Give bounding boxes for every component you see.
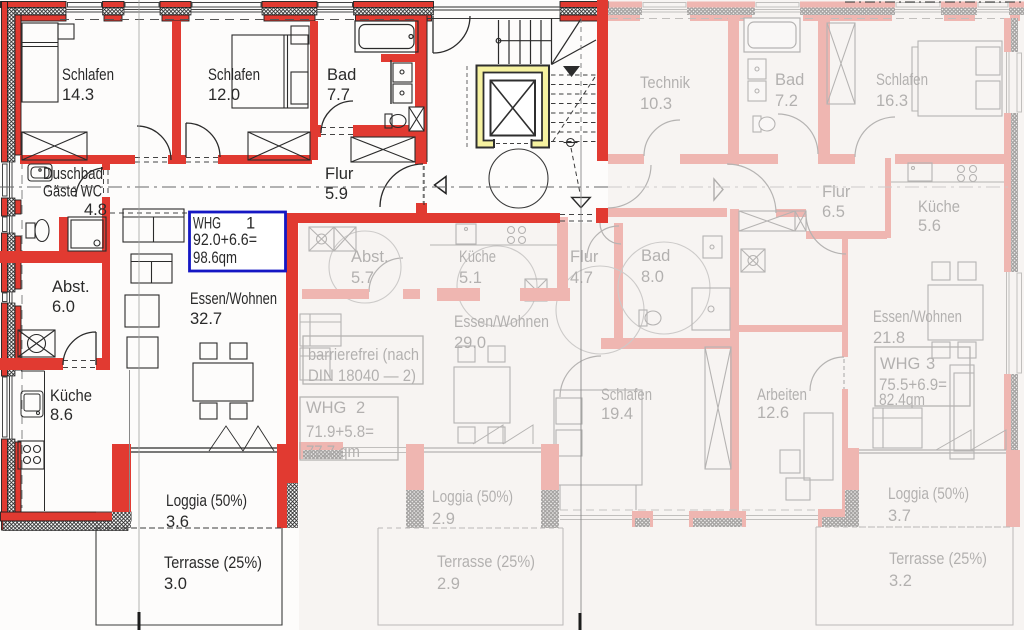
svg-text:92.0+6.6=: 92.0+6.6= xyxy=(193,231,257,249)
svg-text:Loggia (50%): Loggia (50%) xyxy=(888,485,969,503)
svg-text:Schlafen: Schlafen xyxy=(62,66,114,84)
svg-text:98.6qm: 98.6qm xyxy=(193,249,237,267)
svg-text:8.6: 8.6 xyxy=(50,406,73,424)
svg-text:Gäste WC: Gäste WC xyxy=(43,183,102,201)
svg-text:Abst.: Abst. xyxy=(351,248,389,266)
svg-text:21.8: 21.8 xyxy=(873,329,905,347)
svg-text:5.7: 5.7 xyxy=(351,269,374,287)
svg-text:3.6: 3.6 xyxy=(166,513,189,531)
svg-text:77.7 qm: 77.7 qm xyxy=(306,443,360,461)
svg-text:Loggia (50%): Loggia (50%) xyxy=(166,492,247,510)
svg-text:Schlafen: Schlafen xyxy=(208,66,260,84)
svg-text:14.3: 14.3 xyxy=(62,86,94,104)
svg-text:Küche: Küche xyxy=(50,387,92,405)
svg-text:3.0: 3.0 xyxy=(164,575,187,593)
svg-text:Flur: Flur xyxy=(325,165,354,183)
svg-text:6.5: 6.5 xyxy=(822,203,845,221)
svg-text:82.4qm: 82.4qm xyxy=(879,391,925,409)
svg-text:2.9: 2.9 xyxy=(432,510,455,528)
svg-text:Flur: Flur xyxy=(570,248,599,266)
svg-text:Abst.: Abst. xyxy=(52,278,90,296)
svg-text:Essen/Wohnen: Essen/Wohnen xyxy=(873,308,962,326)
svg-text:Küche: Küche xyxy=(918,198,960,216)
svg-text:3.2: 3.2 xyxy=(889,572,912,590)
svg-text:4.8: 4.8 xyxy=(84,201,107,219)
svg-text:12.0: 12.0 xyxy=(208,86,240,104)
svg-text:WHG: WHG xyxy=(880,355,920,373)
svg-text:Bad: Bad xyxy=(775,71,804,89)
svg-text:32.7: 32.7 xyxy=(190,310,222,328)
svg-text:1: 1 xyxy=(246,215,255,233)
svg-text:Technik: Technik xyxy=(640,74,691,92)
svg-text:Arbeiten: Arbeiten xyxy=(757,386,807,404)
svg-text:WHG: WHG xyxy=(193,215,221,233)
svg-text:Küche: Küche xyxy=(459,248,496,266)
svg-text:3: 3 xyxy=(926,355,935,373)
svg-text:DIN 18040 — 2): DIN 18040 — 2) xyxy=(308,367,416,385)
svg-text:5.9: 5.9 xyxy=(325,185,348,203)
svg-text:5.6: 5.6 xyxy=(918,217,941,235)
svg-text:Duschbad: Duschbad xyxy=(43,165,103,183)
svg-text:2.9: 2.9 xyxy=(437,575,460,593)
svg-text:6.0: 6.0 xyxy=(52,298,75,316)
svg-text:5.1: 5.1 xyxy=(459,269,482,287)
svg-text:19.4: 19.4 xyxy=(601,405,633,423)
svg-text:WHG: WHG xyxy=(306,399,346,417)
svg-text:3.7: 3.7 xyxy=(888,507,911,525)
svg-text:Schlafen: Schlafen xyxy=(876,71,928,89)
svg-text:Loggia (50%): Loggia (50%) xyxy=(432,488,513,506)
svg-text:Bad: Bad xyxy=(327,66,356,84)
svg-text:Terrasse (25%): Terrasse (25%) xyxy=(889,550,987,568)
svg-text:7.2: 7.2 xyxy=(775,92,798,110)
svg-text:2: 2 xyxy=(356,399,365,417)
svg-text:4.7: 4.7 xyxy=(570,269,593,287)
svg-text:barrierefrei (nach: barrierefrei (nach xyxy=(308,346,419,364)
svg-text:71.9+5.8=: 71.9+5.8= xyxy=(306,423,374,441)
svg-text:Essen/Wohnen: Essen/Wohnen xyxy=(190,290,277,308)
svg-text:16.3: 16.3 xyxy=(876,92,908,110)
svg-text:Flur: Flur xyxy=(822,183,851,201)
svg-text:Schlafen: Schlafen xyxy=(601,386,652,404)
svg-text:Terrasse (25%): Terrasse (25%) xyxy=(164,554,262,572)
svg-text:29.0: 29.0 xyxy=(454,334,486,352)
svg-text:10.3: 10.3 xyxy=(640,95,672,113)
svg-text:12.6: 12.6 xyxy=(757,404,789,422)
svg-text:Terrasse (25%): Terrasse (25%) xyxy=(437,553,535,571)
svg-text:7.7: 7.7 xyxy=(327,86,350,104)
svg-text:Bad: Bad xyxy=(641,247,670,265)
svg-text:Essen/Wohnen: Essen/Wohnen xyxy=(454,313,549,331)
svg-text:8.0: 8.0 xyxy=(641,268,664,286)
